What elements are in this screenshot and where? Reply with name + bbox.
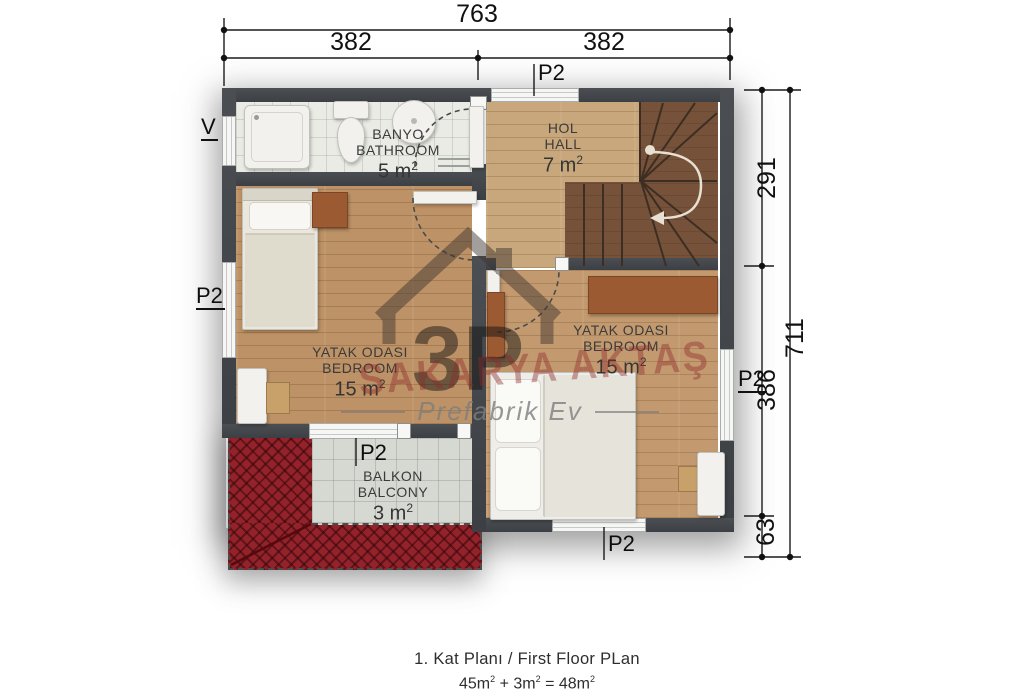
label-window-bottom: P2 — [608, 531, 635, 557]
plan-title: 1. Kat Planı / First Floor PLan — [327, 650, 727, 669]
single-bed-headboard — [243, 189, 317, 201]
tagline-dash-left — [341, 411, 405, 413]
dim-top-right: 382 — [583, 28, 625, 56]
label-vent-left: V — [201, 114, 218, 140]
dim-top-left: 382 — [330, 28, 372, 56]
dim-top-total: 763 — [456, 0, 498, 28]
area-formula: 45m2 + 3m2 = 48m2 — [327, 674, 727, 693]
room-label-bathroom: BANYO BATHROOM 5 m2 — [336, 126, 460, 184]
roof-bottom-section — [228, 523, 482, 570]
tagline-text: Prefabrik Ev — [417, 396, 583, 427]
balcony-name-en: BALCONY — [333, 484, 453, 500]
wall-hall-bedroom-a — [486, 258, 496, 270]
label-window-left: P2 — [196, 283, 225, 309]
double-bed — [490, 372, 636, 520]
floor-plan-canvas: 763 382 382 291 711 386 63 P2 V P2 P2 P2… — [0, 0, 1024, 699]
single-bed-pillow — [249, 202, 311, 230]
double-bed-pillow-2 — [495, 447, 541, 511]
shower-inner-line — [251, 112, 303, 162]
stairs-lower-flight — [565, 182, 640, 268]
door-leaf-bedroom-left — [413, 191, 477, 204]
bathroom-area: 5 m2 — [336, 160, 460, 184]
desk — [237, 368, 267, 424]
dim-right-top: 291 — [753, 157, 781, 199]
room-label-hall: HOL HALL 7 m2 — [513, 120, 613, 178]
room-label-balcony: BALKON BALCONY 3 m2 — [333, 468, 453, 526]
door-post-bedroom-right — [556, 258, 568, 270]
hall-name-tr: HOL — [513, 120, 613, 136]
shower-drain — [254, 115, 259, 120]
hall-area: 7 m2 — [513, 154, 613, 178]
desk-chair — [266, 382, 290, 414]
window-bedroom-left — [223, 263, 235, 357]
bathroom-name-tr: BANYO — [336, 126, 460, 142]
door-leaf-bathroom — [469, 106, 484, 168]
balcony-area: 3 m2 — [333, 502, 453, 526]
window-top-hall — [492, 89, 578, 101]
label-window-right: P2 — [738, 366, 767, 392]
window-bedroom-right-bottom — [553, 519, 645, 531]
window-bathroom-vent — [223, 117, 235, 165]
stool — [678, 466, 698, 492]
window-bedroom-right — [721, 350, 733, 440]
bedside-mat — [312, 192, 348, 228]
dim-right-total: 711 — [781, 318, 809, 358]
stairs-upper-flight — [640, 102, 718, 268]
single-bed-duvet — [245, 233, 315, 327]
shower-tray — [244, 105, 310, 169]
plan-caption: 1. Kat Planı / First Floor PLan 45m2 + 3… — [327, 650, 727, 693]
wall-hall-bedroom-b — [556, 258, 718, 270]
dim-right-bottom: 63 — [752, 518, 780, 546]
balcony-name-tr: BALKON — [333, 468, 453, 484]
bathroom-name-en: BATHROOM — [336, 142, 460, 158]
label-window-balcony: P2 — [360, 440, 387, 466]
watermark-tagline: Prefabrik Ev — [290, 396, 710, 427]
wardrobe — [588, 276, 718, 314]
sink-drain — [411, 118, 417, 124]
label-window-top: P2 — [538, 60, 565, 86]
single-bed — [242, 188, 318, 330]
dresser — [697, 452, 725, 516]
hall-name-en: HALL — [513, 136, 613, 152]
tagline-dash-right — [595, 411, 659, 413]
